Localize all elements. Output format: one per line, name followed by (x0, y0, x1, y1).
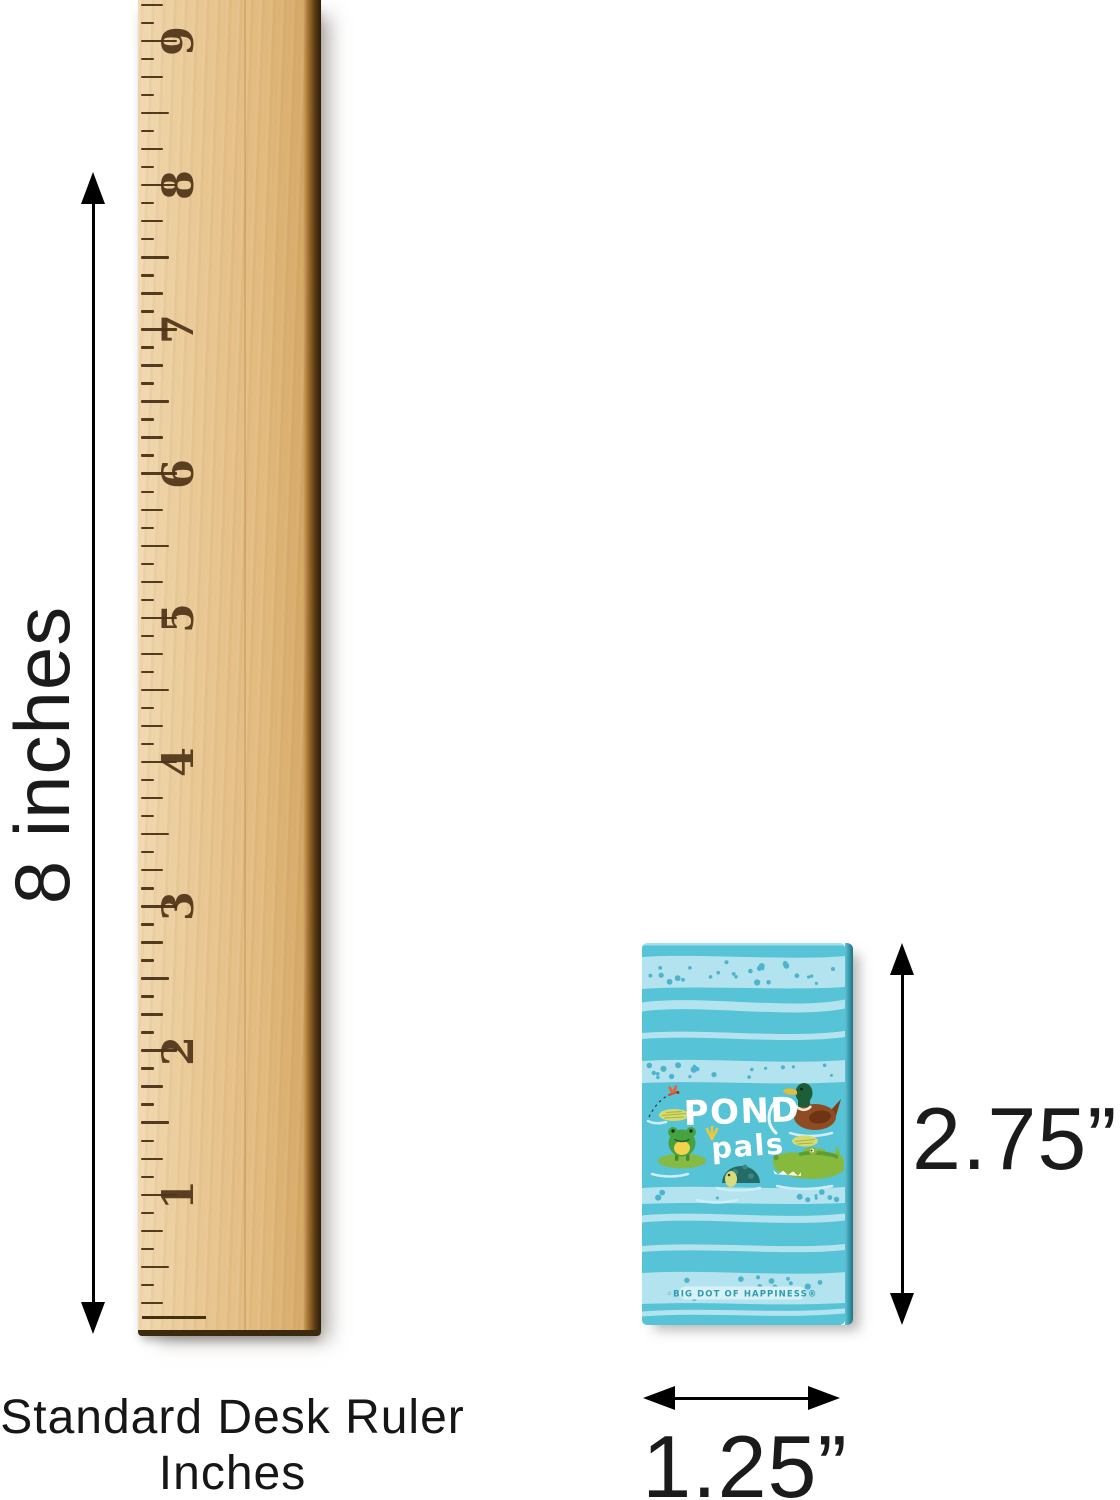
ruler-end-line (142, 1316, 206, 1319)
tick-mark (141, 797, 163, 799)
tick-mark (141, 1121, 169, 1123)
ruler-number: 1 (155, 1171, 203, 1219)
tick-mark (141, 400, 169, 402)
card-height-label: 2.75” (912, 1088, 1118, 1190)
band-dot (797, 1194, 803, 1200)
tick-mark (141, 1284, 154, 1286)
band-dot (747, 1075, 751, 1079)
tick-mark (141, 1212, 154, 1214)
band-dot (818, 1280, 823, 1285)
tick-mark (141, 977, 169, 979)
card-side-edge (845, 943, 853, 1325)
band-dot (828, 1195, 833, 1200)
tick-mark (141, 851, 154, 853)
band-dot (750, 1068, 754, 1072)
lily-pad-icon (792, 1136, 818, 1147)
tick-mark (141, 815, 154, 817)
band-dot (716, 1197, 719, 1200)
tick-mark (141, 887, 154, 889)
tick-mark (141, 58, 154, 60)
tick-mark (141, 1067, 154, 1069)
tick-mark (141, 779, 154, 781)
wooden-ruler-image: 987654321 (138, 0, 321, 1336)
band-dot (823, 1064, 827, 1068)
band-dot (709, 975, 713, 979)
tick-mark (141, 1031, 154, 1033)
ruler-height-label: 8 inches (0, 545, 85, 965)
ruler-number: 9 (155, 17, 203, 65)
ruler-number: 5 (155, 594, 203, 642)
band-dot (786, 1277, 790, 1281)
band-dot (805, 1197, 810, 1202)
tick-mark (141, 1140, 154, 1142)
arrow-down-icon (81, 1302, 105, 1334)
tick-mark (141, 256, 169, 258)
band-dot (688, 966, 692, 970)
dotted-band-upper (642, 1060, 845, 1084)
band-dot (815, 1197, 818, 1200)
tick-mark (141, 635, 154, 637)
tick-mark (141, 436, 163, 438)
tick-mark (141, 599, 154, 601)
tick-mark (141, 220, 163, 222)
band-dot (658, 966, 662, 970)
band-dot (659, 1190, 665, 1196)
ruler-number: 4 (155, 738, 203, 786)
tick-mark (141, 941, 163, 943)
band-dot (815, 982, 818, 985)
band-dot (764, 1067, 767, 1070)
band-dot (684, 1278, 689, 1283)
tick-mark (141, 1013, 163, 1015)
band-dot (754, 979, 760, 985)
tick-mark (141, 833, 169, 835)
arrow-down-icon (890, 1293, 914, 1325)
tick-mark (141, 527, 154, 529)
band-dot (834, 1197, 839, 1202)
band-dot (738, 1276, 744, 1282)
band-dot (748, 969, 753, 974)
band-dot (781, 1065, 785, 1069)
tick-mark (141, 869, 163, 871)
pond-pals-mini-card: POND pals ◦BIG DOT OF HAPPINESS® (642, 943, 853, 1325)
tick-mark (141, 274, 154, 276)
tick-mark (141, 707, 154, 709)
tick-mark (141, 1230, 163, 1232)
tick-mark (141, 995, 154, 997)
tick-mark (141, 418, 154, 420)
tick-mark (141, 1103, 154, 1105)
band-dot (795, 973, 800, 978)
tick-mark (141, 148, 163, 150)
tick-mark (141, 382, 154, 384)
caption: Standard Desk Ruler Inches (0, 1390, 465, 1500)
band-dot (807, 975, 810, 978)
tick-mark (141, 238, 154, 240)
band-dot (675, 1062, 681, 1068)
band-dot (716, 971, 720, 975)
tick-mark (141, 202, 154, 204)
tick-mark (141, 563, 154, 565)
tick-mark (141, 509, 163, 511)
band-dot (660, 1066, 666, 1072)
band-dot (766, 980, 771, 985)
ruler-number: 7 (155, 305, 203, 353)
band-dot (647, 1063, 653, 1069)
tick-mark (141, 1158, 163, 1160)
tick-mark (141, 725, 163, 727)
arrow-line (92, 200, 95, 1306)
tick-mark (141, 346, 154, 348)
ruler-side-edge (303, 0, 321, 1330)
band-dot (656, 1076, 660, 1080)
card-width-label: 1.25” (600, 1416, 890, 1500)
band-dot (734, 975, 738, 979)
tick-mark (141, 130, 154, 132)
band-dot (792, 1065, 795, 1068)
caption-line-1: Standard Desk Ruler (0, 1390, 465, 1446)
band-dot (675, 975, 681, 981)
band-dot (830, 1074, 833, 1077)
band-dot (669, 1074, 674, 1079)
tick-mark (141, 166, 154, 168)
band-dot (711, 1072, 716, 1077)
arrow-line (671, 1397, 812, 1400)
tick-mark (141, 545, 169, 547)
brand-text: ◦BIG DOT OF HAPPINESS® (667, 1290, 818, 1300)
band-dot (691, 1066, 697, 1072)
band-dot (831, 967, 835, 971)
ruler-number: 2 (155, 1027, 203, 1075)
ruler-number: 8 (155, 161, 203, 209)
band-dot (659, 973, 664, 978)
tick-mark (141, 94, 154, 96)
band-dot (681, 978, 685, 982)
tick-mark (141, 310, 154, 312)
tick-mark (141, 689, 169, 691)
caption-line-2: Inches (0, 1446, 465, 1500)
tick-mark (141, 1248, 154, 1250)
band-dot (725, 960, 729, 964)
tick-mark (141, 76, 163, 78)
band-dot (667, 979, 673, 985)
band-dot (655, 1195, 661, 1201)
tick-mark (141, 653, 163, 655)
ruler-number: 6 (155, 450, 203, 498)
wood-grain (244, 0, 246, 1330)
tick-mark (141, 1302, 163, 1304)
band-dot (656, 1072, 660, 1076)
dotted-band-top (642, 956, 845, 989)
ruler-number: 3 (155, 882, 203, 930)
tick-mark (141, 1176, 154, 1178)
tick-mark (141, 743, 154, 745)
arrow-right-icon (808, 1386, 840, 1410)
band-dot (756, 1275, 760, 1279)
band-dot (769, 1278, 775, 1284)
tick-mark (141, 292, 163, 294)
tick-mark (141, 491, 154, 493)
tick-mark (141, 671, 154, 673)
tick-mark (141, 1266, 169, 1268)
card-top-highlight (642, 943, 845, 946)
tick-mark (141, 4, 163, 6)
tick-mark (141, 1085, 163, 1087)
product-dimensions-infographic: 987654321 8 inches (0, 0, 1120, 1500)
tick-mark (141, 364, 163, 366)
band-dot (815, 1194, 818, 1197)
tick-mark (141, 959, 154, 961)
band-dot (789, 1281, 793, 1285)
card-subtitle: pals (710, 1126, 786, 1165)
band-dot (810, 974, 813, 977)
band-dot (652, 1071, 656, 1075)
tick-mark (141, 581, 163, 583)
arrow-line (901, 971, 904, 1297)
band-dot (761, 967, 764, 970)
tick-mark (141, 112, 169, 114)
band-dot (688, 1075, 691, 1078)
tick-mark (141, 454, 154, 456)
band-dot (819, 1189, 825, 1195)
band-dot (784, 963, 790, 969)
tick-mark (141, 22, 154, 24)
band-dot (649, 974, 653, 978)
tick-mark (141, 923, 154, 925)
band-dot (732, 972, 736, 976)
